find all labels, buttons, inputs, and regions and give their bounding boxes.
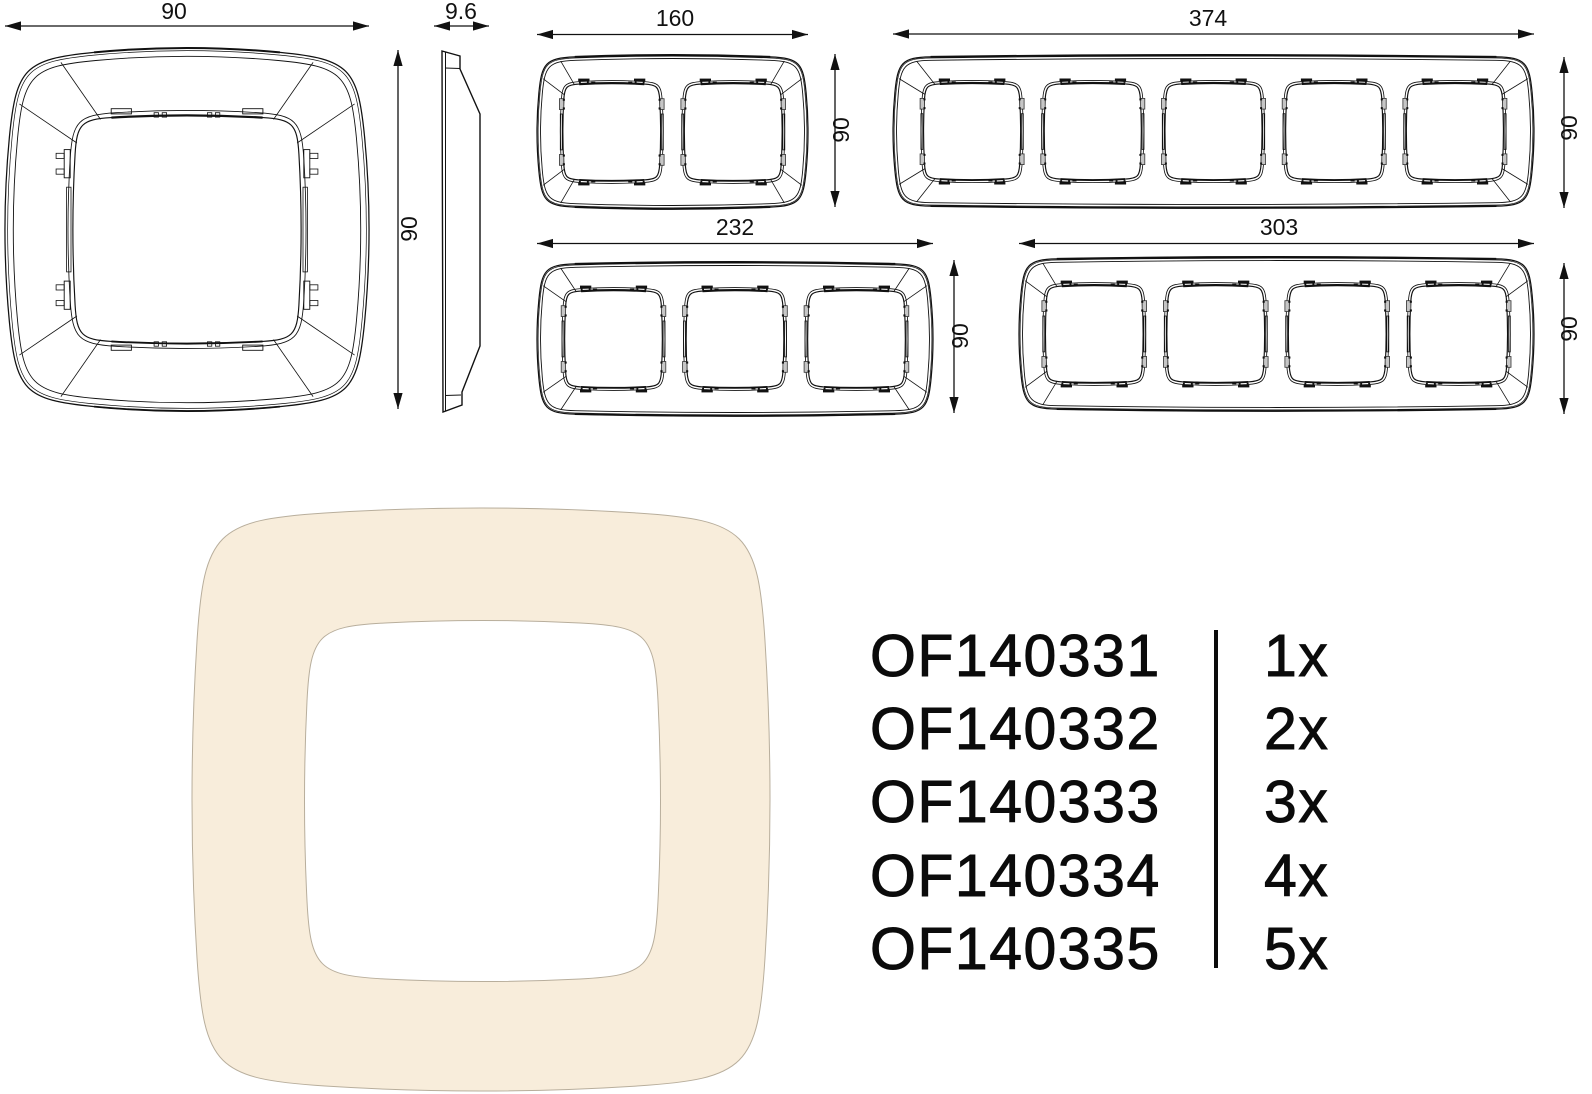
svg-text:303: 303: [1260, 214, 1298, 240]
svg-text:4x: 4x: [1264, 843, 1329, 909]
svg-text:5x: 5x: [1264, 916, 1329, 982]
svg-text:OF140331: OF140331: [870, 623, 1161, 689]
svg-text:90: 90: [396, 216, 422, 242]
svg-text:1x: 1x: [1264, 623, 1329, 689]
svg-text:3x: 3x: [1264, 769, 1329, 835]
svg-text:OF140332: OF140332: [870, 696, 1161, 762]
svg-text:232: 232: [716, 214, 754, 240]
svg-text:9.6: 9.6: [445, 0, 477, 24]
svg-text:90: 90: [1556, 115, 1582, 141]
svg-text:160: 160: [656, 5, 694, 31]
svg-text:90: 90: [947, 323, 973, 349]
svg-text:90: 90: [1556, 316, 1582, 342]
svg-text:90: 90: [828, 117, 854, 143]
svg-text:OF140333: OF140333: [870, 769, 1161, 835]
svg-text:2x: 2x: [1264, 696, 1329, 762]
svg-text:OF140334: OF140334: [870, 843, 1161, 909]
svg-text:OF140335: OF140335: [870, 916, 1161, 982]
svg-text:90: 90: [161, 0, 187, 24]
svg-text:374: 374: [1189, 5, 1228, 31]
